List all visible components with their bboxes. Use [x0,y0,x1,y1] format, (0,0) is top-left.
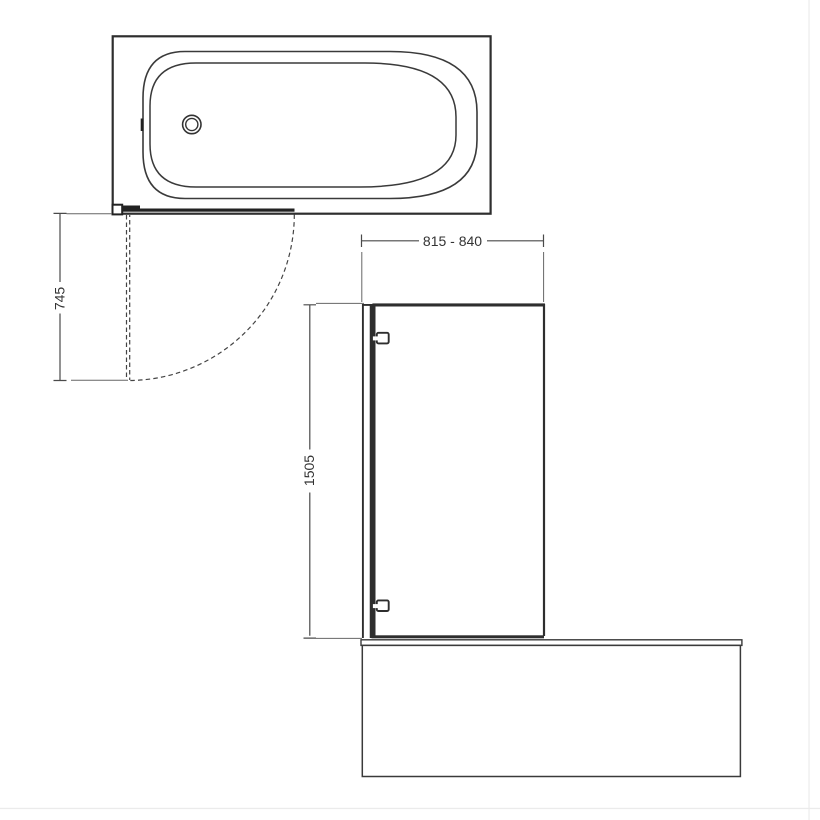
svg-text:815 - 840: 815 - 840 [423,233,482,249]
svg-text:745: 745 [52,287,68,311]
svg-text:1505: 1505 [301,455,317,486]
